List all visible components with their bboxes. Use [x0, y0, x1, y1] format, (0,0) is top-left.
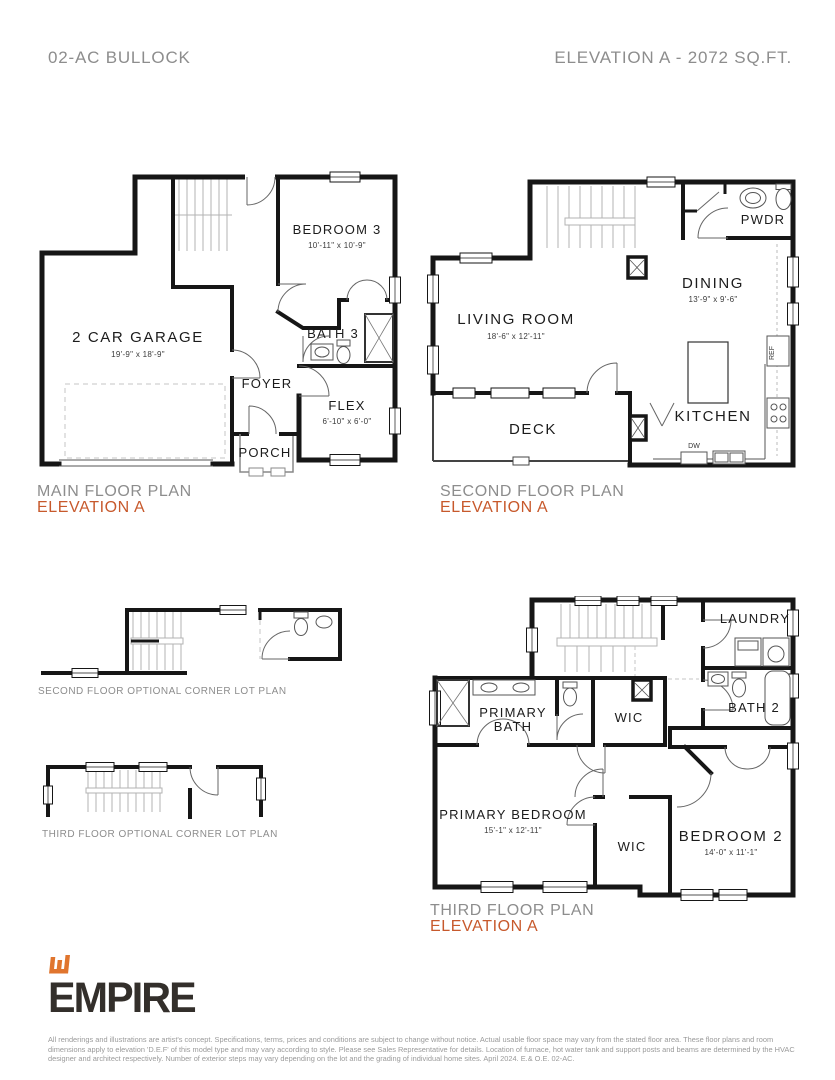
- room-label-flex: FLEX: [328, 398, 365, 413]
- second-floor-title-block: SECOND FLOOR PLAN ELEVATION A: [440, 484, 624, 516]
- laundry-fixtures: [735, 638, 789, 666]
- pwdr-fixtures: [740, 184, 791, 210]
- room-dims-dining: 13'-9" x 9'-6": [689, 295, 738, 304]
- stairs-third: [557, 604, 657, 676]
- main-floor-title: MAIN FLOOR PLAN: [37, 484, 192, 500]
- brand-name: EMPIRE: [48, 980, 195, 1016]
- third-floor-title: THIRD FLOOR PLAN: [430, 903, 594, 919]
- room-dims-living: 18'-6" x 12'-11": [487, 332, 545, 341]
- room-label-bedroom3: BEDROOM 3: [293, 222, 382, 237]
- room-dims-bedroom2: 14'-0" x 11'-1": [704, 848, 757, 857]
- doors: [190, 767, 218, 795]
- room-label-dining: DINING: [682, 275, 744, 292]
- main-floor-plan-drawing: 2 CAR GARAGE 19'-9" x 18'-9" BEDROOM 3 1…: [35, 166, 407, 480]
- label-ref: REF: [769, 346, 776, 360]
- room-dims-primary-bedroom: 15'-1" x 12'-11": [484, 826, 542, 835]
- doors: [262, 631, 290, 659]
- garage-dashed-area: [65, 384, 225, 458]
- room-label-wic-lower: WIC: [618, 839, 647, 854]
- second-floor-subtitle: ELEVATION A: [440, 500, 624, 516]
- main-floor-subtitle: ELEVATION A: [37, 500, 192, 516]
- stairs-optional3: [86, 770, 162, 812]
- model-name: 02-AC BULLOCK: [48, 48, 191, 68]
- room-label-kitchen: KITCHEN: [674, 408, 751, 425]
- garage-door-opening: [59, 460, 213, 466]
- room-label-bedroom2: BEDROOM 2: [679, 828, 783, 845]
- room-label-bath3: BATH 3: [307, 326, 359, 341]
- third-floor-title-block: THIRD FLOOR PLAN ELEVATION A: [430, 903, 594, 935]
- doors: [587, 192, 728, 426]
- doors: [232, 171, 387, 434]
- stairs-second: [547, 186, 635, 248]
- room-label-foyer: FOYER: [242, 376, 293, 391]
- room-label-porch: PORCH: [239, 445, 292, 460]
- floorplan-sheet: 02-AC BULLOCK ELEVATION A - 2072 SQ.FT.: [0, 0, 835, 1080]
- pwdr-fixtures: [294, 612, 332, 636]
- third-floor-optional-title: THIRD FLOOR OPTIONAL CORNER LOT PLAN: [42, 829, 278, 840]
- stairs-optional2: [131, 612, 183, 670]
- room-label-primary-bath-1: PRIMARY: [479, 705, 546, 720]
- second-floor-optional-title: SECOND FLOOR OPTIONAL CORNER LOT PLAN: [38, 686, 287, 697]
- second-floor-title: SECOND FLOOR PLAN: [440, 484, 624, 500]
- room-label-wic-upper: WIC: [615, 710, 644, 725]
- empire-logo: EMPIRE: [48, 955, 201, 1016]
- room-label-garage: 2 CAR GARAGE: [72, 329, 204, 346]
- kitchen-island: [688, 342, 728, 403]
- room-label-deck: DECK: [509, 421, 557, 438]
- bath2-fixtures: [708, 671, 790, 725]
- room-label-laundry: LAUNDRY: [720, 611, 790, 626]
- third-floor-subtitle: ELEVATION A: [430, 919, 594, 935]
- crown-icon: [48, 955, 80, 974]
- second-floor-optional-drawing: [38, 602, 348, 688]
- walls: [43, 610, 340, 673]
- room-label-primary-bedroom: PRIMARY BEDROOM: [439, 807, 587, 822]
- room-dims-garage: 19'-9" x 18'-9": [111, 350, 165, 359]
- room-label-pwdr: PWDR: [741, 212, 786, 227]
- third-floor-plan-drawing: LAUNDRY BATH 2 PRIMARY BATH WIC WIC PRIM…: [425, 596, 817, 902]
- chase-box: [633, 680, 651, 700]
- room-dims-bedroom3: 10'-11" x 10'-9": [308, 241, 366, 250]
- third-floor-optional-drawing: [42, 762, 267, 834]
- disclaimer-text: All renderings and illustrations are art…: [48, 1035, 800, 1064]
- room-label-living: LIVING ROOM: [457, 311, 575, 328]
- elevation-info: ELEVATION A - 2072 SQ.FT.: [554, 48, 792, 68]
- stairs-main: [173, 179, 232, 251]
- label-dw: DW: [688, 443, 700, 450]
- room-label-primary-bath-2: BATH: [494, 719, 533, 734]
- room-label-bath2: BATH 2: [728, 700, 780, 715]
- room-dims-flex: 6'-10" x 6'-0": [323, 417, 372, 426]
- main-floor-title-block: MAIN FLOOR PLAN ELEVATION A: [37, 484, 192, 516]
- second-floor-plan-drawing: LIVING ROOM 18'-6" x 12'-11" DINING 13'-…: [425, 176, 817, 468]
